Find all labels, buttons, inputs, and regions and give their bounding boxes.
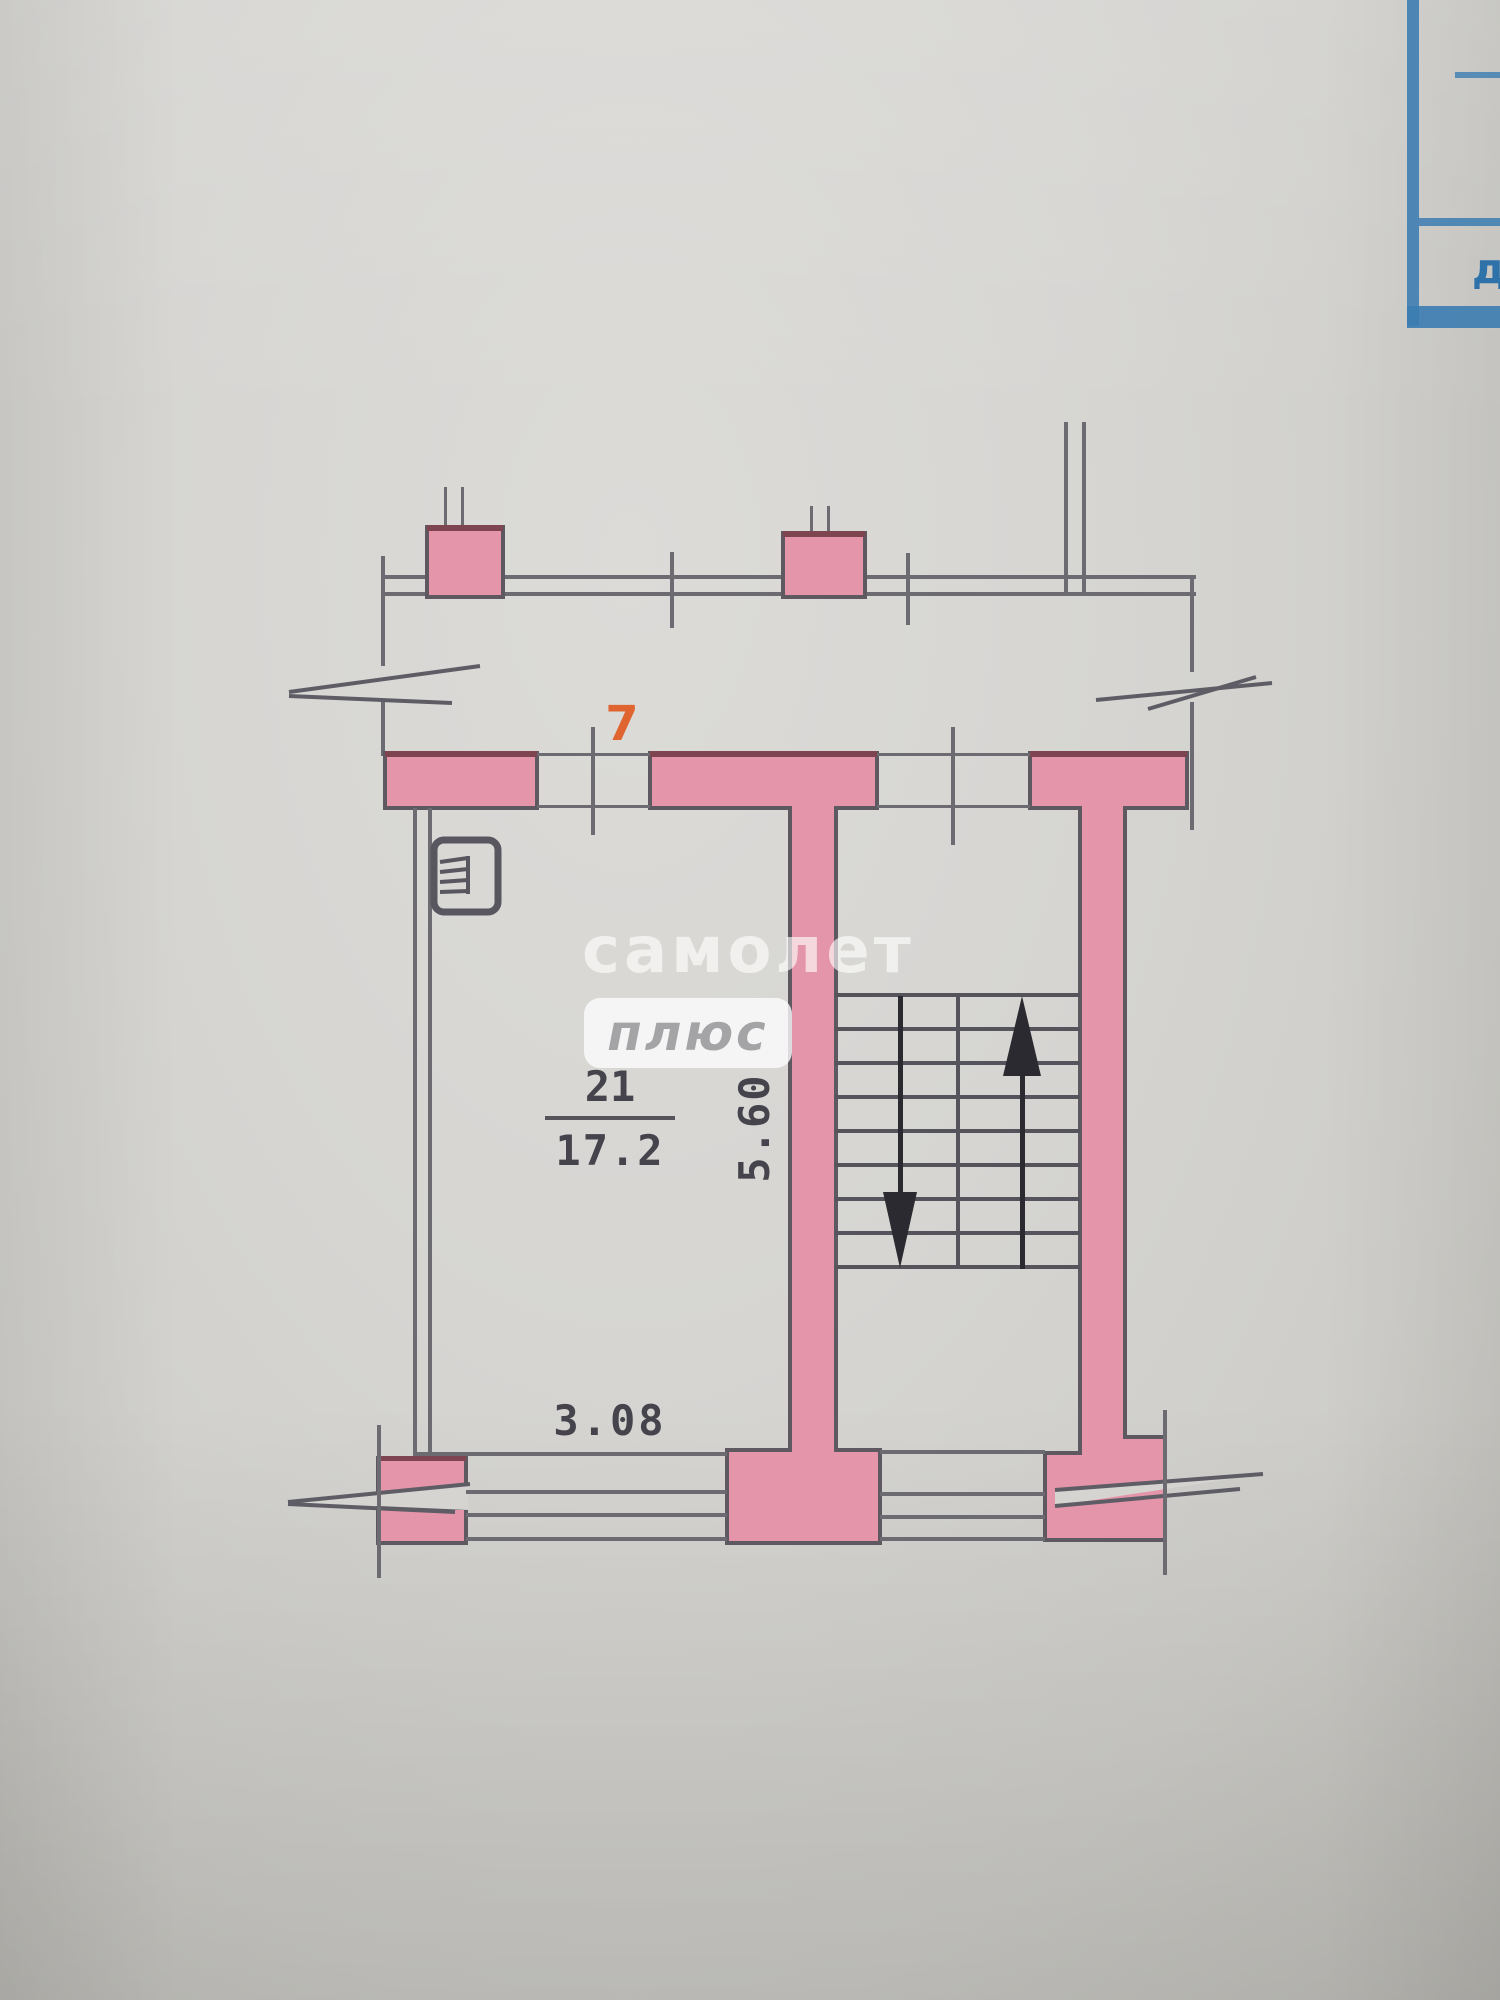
room-area-label: 17.2 — [540, 1126, 680, 1175]
window-left-line-1 — [466, 1490, 727, 1494]
band-tick-1 — [670, 552, 674, 628]
room-fraction-line — [545, 1116, 675, 1120]
bottom-right-outer-line — [1163, 1410, 1167, 1575]
dimension-horizontal-label: 3.08 — [538, 1396, 682, 1445]
edge-2 — [650, 751, 877, 757]
left-wall-line-outer — [413, 808, 417, 1455]
pier1 — [427, 527, 503, 597]
window-right-line-3 — [880, 1537, 1045, 1541]
room-number-label: 21 — [547, 1062, 673, 1111]
band-left-vertical-lower — [381, 700, 385, 756]
pier2-tick-b — [827, 506, 830, 535]
panel-hatch — [440, 856, 468, 894]
window-right-line-1 — [880, 1492, 1045, 1496]
outer-line — [1163, 1410, 1167, 1575]
portal-line-right — [1082, 422, 1086, 594]
band-right-vertical-lower — [1190, 702, 1194, 830]
corner-table-row-line-2 — [1419, 218, 1500, 226]
pier2-tick-a — [810, 506, 813, 535]
corner-table-bottom-bar — [1407, 306, 1500, 328]
band-left-vertical-upper — [381, 556, 385, 666]
watermark-plus-badge: плюс — [584, 998, 792, 1068]
pier2-top-edge — [783, 531, 865, 537]
portal-line-left — [1064, 422, 1068, 594]
floor-plan-photo: 7 21 17.2 5.60 3.08 самолет плюс д — [0, 0, 1500, 2000]
corner-table-row-line-1 — [1455, 72, 1500, 78]
flight-divider-line — [956, 993, 960, 1269]
band-right-vertical-upper — [1190, 577, 1194, 672]
window-right-line-2 — [880, 1515, 1045, 1519]
down-arrow-shaft — [898, 996, 903, 1194]
edge-3 — [1030, 751, 1187, 757]
window-left-line-2 — [466, 1513, 727, 1517]
up-arrow-head — [1003, 996, 1041, 1076]
window-right-top — [880, 1450, 1045, 1454]
upper-band-piers — [427, 525, 865, 597]
opening2-tick — [951, 727, 955, 845]
edge-1 — [385, 751, 537, 757]
bottom-left-outer-line — [377, 1425, 381, 1578]
room-floor-line — [413, 1452, 727, 1456]
edge-4 — [378, 1456, 466, 1461]
pier1-tick-b — [461, 487, 464, 529]
watermark-plus-text: плюс — [607, 1004, 768, 1062]
corner-table-letter: д — [1472, 244, 1500, 293]
down-arrow-head — [883, 1192, 917, 1268]
top-wall-left-segment — [385, 753, 537, 808]
staircase — [835, 993, 1080, 1269]
band-tick-2 — [906, 553, 910, 625]
pier1-top-edge — [427, 525, 503, 531]
flat-number-label: 7 — [592, 696, 652, 752]
window-left-line-3 — [466, 1537, 727, 1541]
watermark-samolet: самолет — [582, 914, 915, 988]
dimension-vertical-label: 5.60 — [697, 1066, 813, 1190]
break-left-upper-a — [289, 666, 480, 692]
outer-line — [377, 1425, 381, 1578]
pier1-tick-a — [444, 487, 447, 529]
corner-table-vertical-line — [1407, 0, 1419, 326]
pier2 — [783, 533, 865, 597]
electrical-panel-icon — [434, 840, 498, 912]
break-left-upper-b — [289, 696, 452, 703]
